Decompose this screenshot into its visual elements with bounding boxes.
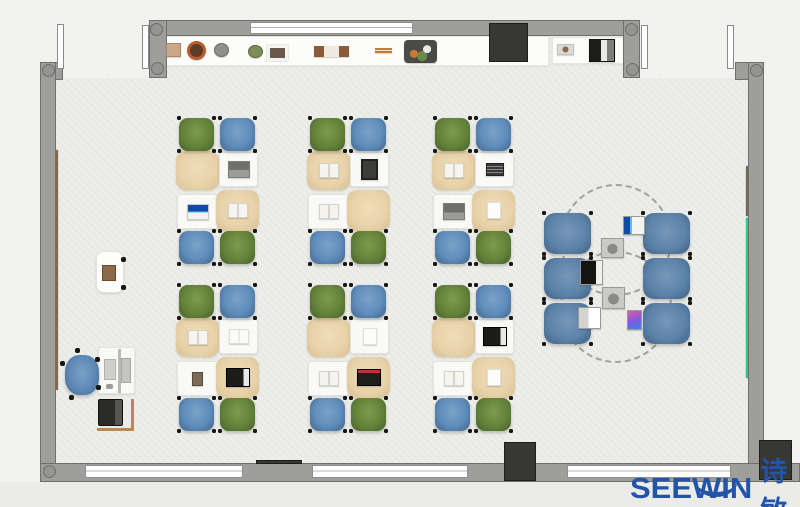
student-desk-cloth[interactable] bbox=[216, 357, 259, 398]
student-chair-blue[interactable] bbox=[351, 285, 386, 318]
book-open[interactable] bbox=[228, 203, 248, 218]
side-table-edge bbox=[97, 428, 134, 431]
door-leaf-left-b[interactable] bbox=[142, 25, 149, 69]
podium[interactable] bbox=[96, 251, 124, 293]
photo-frame[interactable] bbox=[267, 45, 288, 61]
book-open[interactable] bbox=[319, 163, 339, 178]
laptop-gray[interactable] bbox=[443, 203, 465, 220]
teacher-office-chair[interactable] bbox=[65, 355, 99, 395]
discussion-chair-blue[interactable] bbox=[643, 258, 690, 299]
plant-pot-gray[interactable] bbox=[214, 43, 229, 57]
sill-accent bbox=[256, 460, 302, 464]
plant-pot-brown[interactable] bbox=[187, 41, 206, 60]
student-chair-green[interactable] bbox=[435, 285, 470, 318]
student-desk-white[interactable] bbox=[350, 319, 389, 354]
mouse[interactable] bbox=[106, 384, 113, 389]
student-chair-blue[interactable] bbox=[179, 231, 214, 264]
wall-left bbox=[40, 62, 56, 482]
window-top bbox=[250, 22, 413, 34]
student-chair-blue[interactable] bbox=[179, 398, 214, 431]
side-table-edge bbox=[131, 399, 134, 430]
window-bottom-center bbox=[312, 465, 468, 478]
book-open[interactable] bbox=[319, 371, 339, 386]
window-bottom-left bbox=[85, 465, 243, 478]
brand-logo: SEEWIN 诗敏 bbox=[630, 450, 800, 507]
floor-plan-canvas: SEEWIN 诗敏 bbox=[0, 0, 800, 507]
wall-post bbox=[43, 465, 56, 478]
student-desk-cloth[interactable] bbox=[472, 190, 515, 231]
door-leaf-right-b[interactable] bbox=[727, 25, 734, 69]
student-chair-green[interactable] bbox=[310, 118, 345, 151]
laptop-black[interactable] bbox=[580, 260, 603, 285]
student-desk-white[interactable] bbox=[433, 194, 474, 229]
student-desk-cloth[interactable] bbox=[216, 190, 259, 231]
student-desk-cloth[interactable] bbox=[347, 190, 390, 231]
photo[interactable] bbox=[192, 372, 203, 386]
wall-right bbox=[748, 62, 764, 482]
tablet-sketch[interactable] bbox=[602, 287, 625, 309]
student-desk-cloth[interactable] bbox=[432, 151, 475, 190]
student-desk-white[interactable] bbox=[475, 319, 514, 354]
laptop-blue[interactable] bbox=[187, 204, 209, 220]
student-chair-blue[interactable] bbox=[310, 231, 345, 264]
student-desk-cloth[interactable] bbox=[432, 318, 475, 357]
student-chair-green[interactable] bbox=[310, 285, 345, 318]
student-desk-white[interactable] bbox=[308, 361, 349, 396]
student-chair-green[interactable] bbox=[435, 118, 470, 151]
book-open[interactable] bbox=[188, 330, 208, 345]
plant-tray[interactable] bbox=[404, 40, 437, 63]
wall-post bbox=[151, 62, 164, 75]
student-chair-blue[interactable] bbox=[310, 398, 345, 431]
paper[interactable] bbox=[487, 369, 501, 386]
student-desk-white[interactable] bbox=[350, 152, 389, 187]
monitor[interactable] bbox=[121, 358, 131, 383]
student-chair-blue[interactable] bbox=[476, 285, 511, 318]
book-open[interactable] bbox=[444, 371, 464, 386]
student-desk-white[interactable] bbox=[219, 152, 258, 187]
laptop-white[interactable] bbox=[578, 307, 601, 329]
door-leaf-right-a[interactable] bbox=[641, 25, 648, 69]
student-desk-cloth[interactable] bbox=[307, 318, 350, 357]
student-chair-blue[interactable] bbox=[435, 231, 470, 264]
student-desk-white[interactable] bbox=[177, 194, 218, 229]
student-desk-cloth[interactable] bbox=[176, 318, 219, 357]
plant-pot-green[interactable] bbox=[248, 45, 263, 58]
paper[interactable] bbox=[487, 202, 501, 219]
book-open[interactable] bbox=[444, 163, 464, 178]
printer[interactable] bbox=[589, 39, 615, 62]
discussion-chair-blue[interactable] bbox=[643, 213, 690, 254]
student-desk-white[interactable] bbox=[219, 319, 258, 354]
laptop-blue-screen[interactable] bbox=[623, 216, 645, 235]
tablet-dark[interactable] bbox=[361, 159, 378, 180]
student-desk-cloth[interactable] bbox=[176, 151, 219, 190]
keyboard[interactable] bbox=[104, 359, 116, 380]
wall-post bbox=[42, 64, 55, 77]
student-desk-white[interactable] bbox=[433, 361, 474, 396]
student-desk-white[interactable] bbox=[177, 361, 218, 396]
student-chair-green[interactable] bbox=[220, 398, 255, 431]
student-chair-blue[interactable] bbox=[220, 118, 255, 151]
student-chair-green[interactable] bbox=[476, 398, 511, 431]
laptop-black[interactable] bbox=[483, 327, 507, 346]
student-chair-blue[interactable] bbox=[351, 118, 386, 151]
decor-box[interactable] bbox=[166, 43, 181, 57]
wall-post bbox=[150, 23, 163, 36]
student-desk-white[interactable] bbox=[475, 152, 514, 187]
laptop-black[interactable] bbox=[226, 368, 250, 387]
laptop-gray[interactable] bbox=[228, 161, 250, 178]
paper[interactable] bbox=[363, 328, 377, 345]
door-leaf-left-a[interactable] bbox=[57, 24, 64, 69]
book-open[interactable] bbox=[319, 204, 339, 219]
teacher-printer[interactable] bbox=[98, 399, 123, 426]
student-desk-white[interactable] bbox=[308, 194, 349, 229]
tablet-color[interactable] bbox=[627, 310, 642, 330]
book-stack[interactable] bbox=[314, 46, 349, 57]
student-desk-cloth[interactable] bbox=[472, 357, 515, 398]
student-chair-green[interactable] bbox=[351, 398, 386, 431]
podium-book bbox=[102, 265, 116, 281]
student-chair-green[interactable] bbox=[179, 285, 214, 318]
column-cabinet-top bbox=[489, 23, 528, 62]
book-white[interactable] bbox=[229, 329, 249, 344]
student-chair-blue[interactable] bbox=[476, 118, 511, 151]
brand-name-cn: 诗敏 bbox=[760, 450, 800, 507]
discussion-chair-blue[interactable] bbox=[643, 303, 690, 344]
book-dark[interactable] bbox=[486, 163, 504, 176]
student-desk-cloth[interactable] bbox=[307, 151, 350, 190]
small-tray[interactable] bbox=[557, 44, 574, 55]
discussion-chair-blue[interactable] bbox=[544, 213, 591, 254]
student-chair-blue[interactable] bbox=[220, 285, 255, 318]
wall-post bbox=[750, 64, 763, 77]
student-chair-green[interactable] bbox=[351, 231, 386, 264]
student-desk-cloth[interactable] bbox=[347, 357, 390, 398]
laptop-red[interactable] bbox=[357, 369, 381, 386]
student-chair-blue[interactable] bbox=[435, 398, 470, 431]
decor-sticks[interactable] bbox=[375, 48, 392, 53]
ac-unit-bottom bbox=[504, 442, 536, 481]
tablet-sketch[interactable] bbox=[601, 238, 624, 258]
student-chair-green[interactable] bbox=[179, 118, 214, 151]
student-chair-green[interactable] bbox=[220, 231, 255, 264]
wall-post bbox=[626, 63, 639, 76]
wall-post bbox=[625, 23, 638, 36]
student-chair-green[interactable] bbox=[476, 231, 511, 264]
